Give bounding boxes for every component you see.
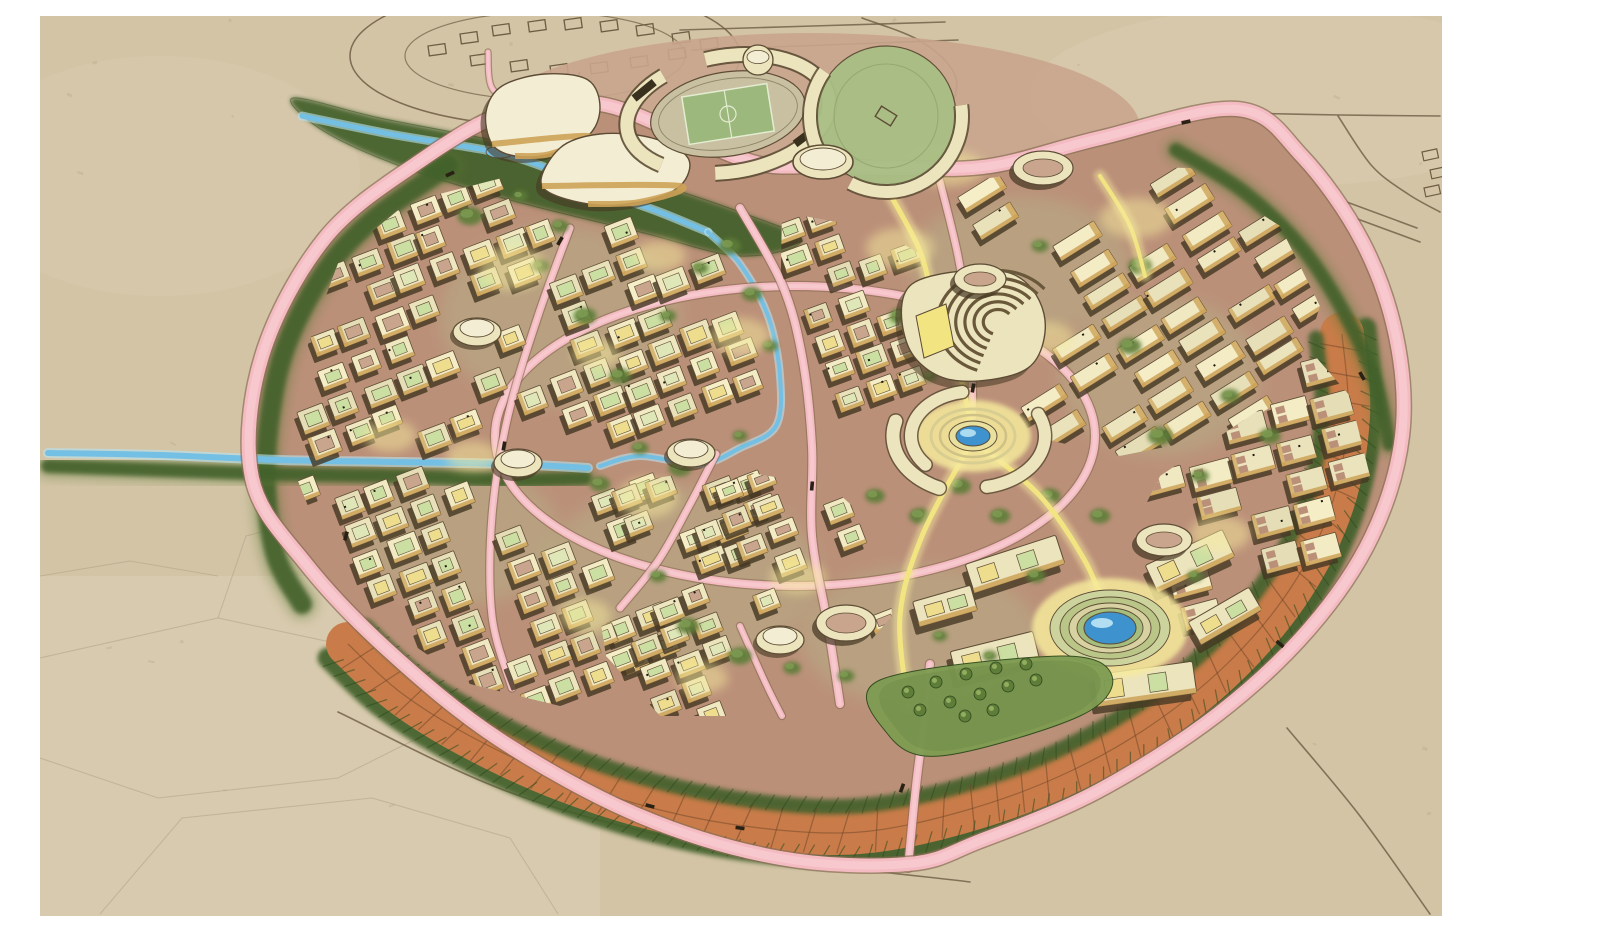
masterplan-figure <box>40 16 1600 916</box>
paper-margin <box>1442 16 1600 916</box>
circular-city-masterplan-drawing <box>40 16 1600 916</box>
ring-road-oval-plaza <box>793 145 853 179</box>
